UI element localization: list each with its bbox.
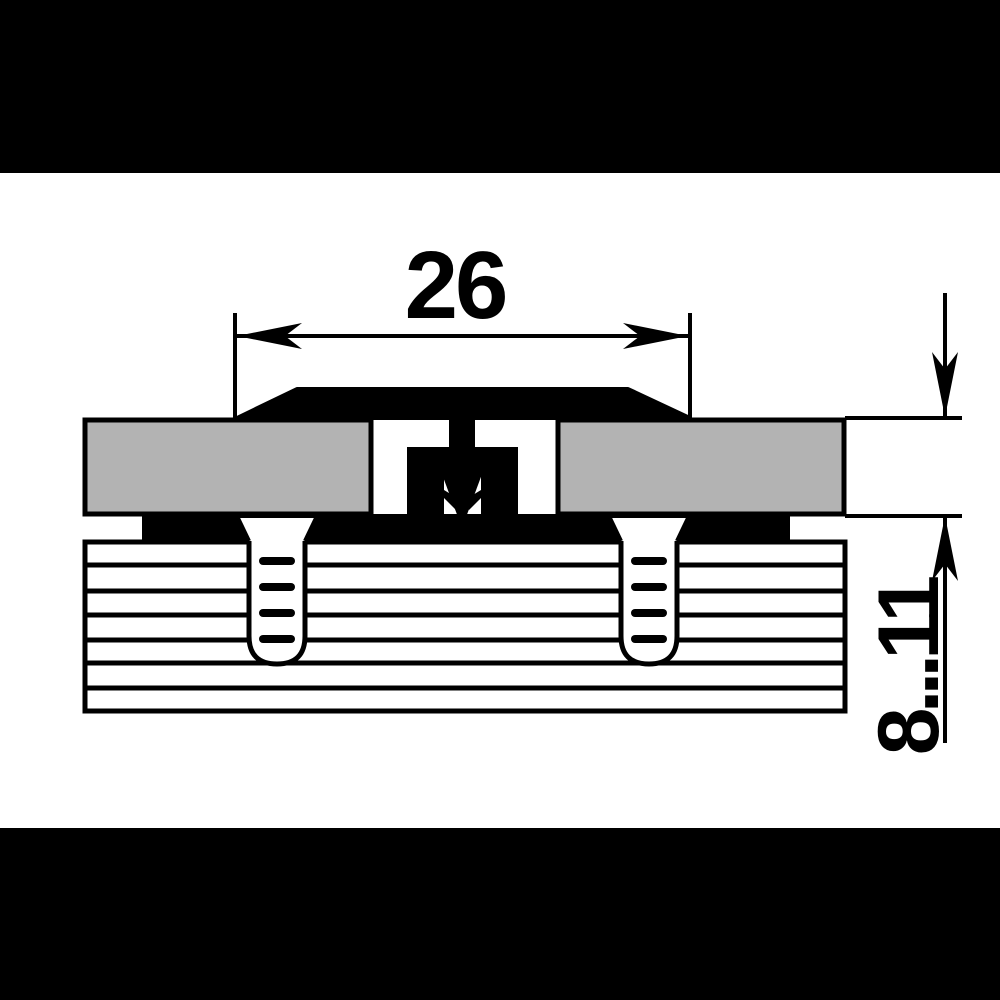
screw-left-shaft	[249, 539, 305, 664]
base-board	[85, 542, 845, 711]
dimension-height: 8...11	[845, 293, 962, 755]
floor-panel-left	[85, 420, 371, 514]
screw-right-head	[609, 516, 689, 541]
snap-clip	[407, 412, 518, 541]
letterbox-bottom	[0, 828, 1000, 1000]
floor-panel-right	[558, 420, 844, 514]
screw-right-shaft	[621, 539, 677, 664]
width-dimension-label: 26	[405, 232, 506, 339]
height-dimension-label: 8...11	[861, 577, 957, 756]
drawing-canvas: 26 8...11	[0, 0, 1000, 1000]
screw-left-head	[237, 516, 317, 541]
profile-cross-section-drawing: 26 8...11	[0, 0, 1000, 1000]
letterbox-top	[0, 0, 1000, 173]
